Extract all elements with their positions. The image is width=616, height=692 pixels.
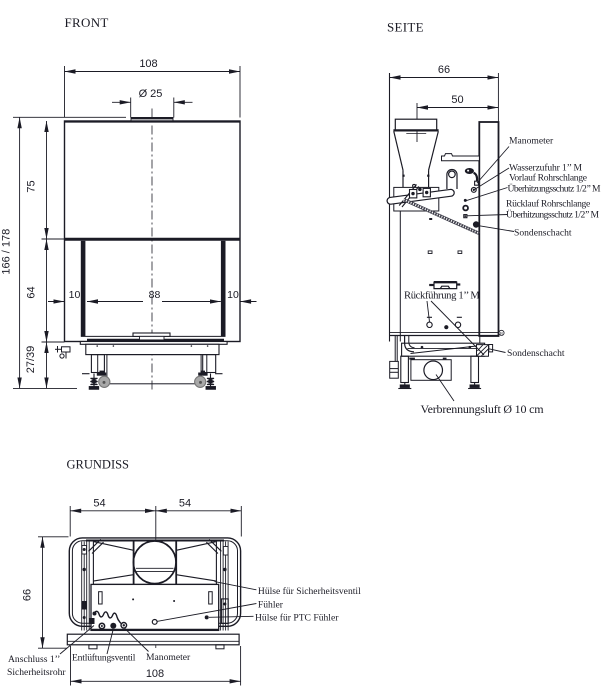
svg-text:Manometer: Manometer: [509, 136, 554, 147]
svg-text:GRUNDISS: GRUNDISS: [67, 458, 130, 472]
svg-text:Überhitzungsschutz 1/2’’ M: Überhitzungsschutz 1/2’’ M: [508, 182, 601, 194]
svg-text:88: 88: [149, 289, 161, 301]
svg-text:54: 54: [179, 498, 191, 510]
svg-text:Vorlauf Rohrschlange: Vorlauf Rohrschlange: [509, 173, 587, 184]
svg-text:54: 54: [93, 498, 105, 510]
svg-text:10: 10: [227, 289, 239, 301]
svg-text:Fühler: Fühler: [258, 599, 284, 610]
svg-text:Rücklauf Rohrschlange: Rücklauf Rohrschlange: [506, 198, 590, 209]
svg-text:27/39: 27/39: [25, 346, 37, 374]
svg-text:166 / 178: 166 / 178: [1, 229, 13, 275]
svg-text:108: 108: [146, 668, 164, 680]
svg-text:Überhitzungsschutz 1/2’’ M: Überhitzungsschutz 1/2’’ M: [506, 208, 599, 220]
svg-text:Verbrennungsluft Ø 10 cm: Verbrennungsluft Ø 10 cm: [421, 402, 545, 416]
svg-text:FRONT: FRONT: [65, 15, 109, 30]
svg-text:Entlüftungsventil: Entlüftungsventil: [72, 653, 136, 664]
svg-text:Manometer: Manometer: [146, 652, 191, 663]
svg-text:Hülse für PTC Fühler: Hülse für PTC Fühler: [255, 612, 339, 623]
svg-text:50: 50: [451, 94, 463, 106]
svg-text:Sicherheitsrohr: Sicherheitsrohr: [7, 667, 66, 678]
svg-text:Ø 25: Ø 25: [139, 88, 163, 100]
svg-text:Hülse für Sicherheitsventil: Hülse für Sicherheitsventil: [258, 586, 361, 597]
svg-text:Rückführung 1’’ M: Rückführung 1’’ M: [404, 291, 480, 302]
svg-text:Sondenschacht: Sondenschacht: [514, 228, 572, 239]
svg-text:108: 108: [139, 58, 157, 70]
svg-text:64: 64: [26, 286, 38, 298]
svg-text:Sondenschacht: Sondenschacht: [507, 348, 565, 359]
svg-text:66: 66: [438, 64, 450, 76]
svg-text:66: 66: [22, 589, 34, 601]
svg-text:Anschluss 1’’: Anschluss 1’’: [8, 654, 60, 665]
svg-text:75: 75: [26, 180, 38, 192]
svg-text:10: 10: [69, 289, 81, 301]
svg-text:SEITE: SEITE: [387, 20, 424, 35]
